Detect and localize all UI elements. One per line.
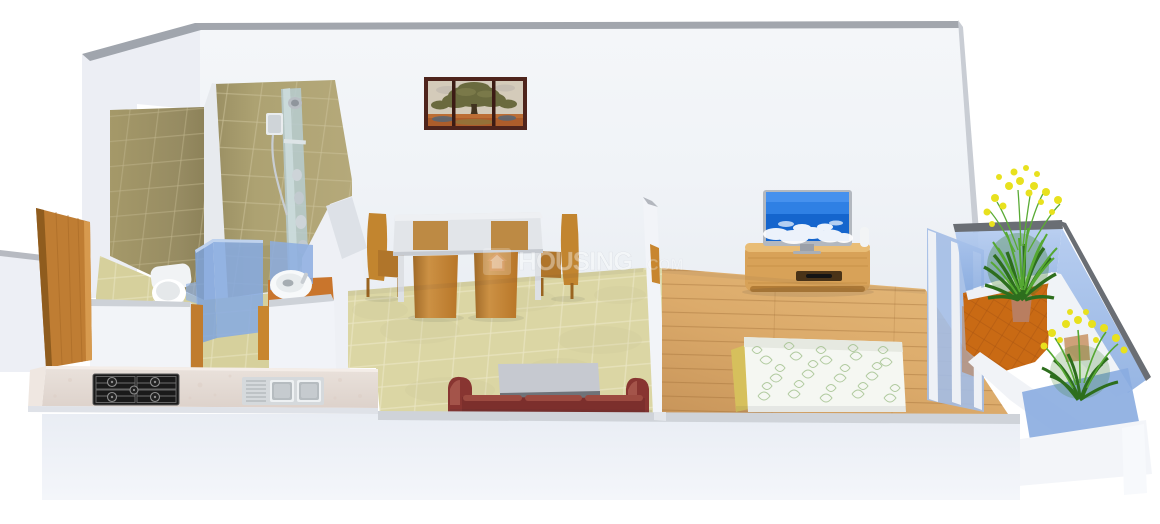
svg-text:.COM: .COM [643,257,683,274]
svg-text:HOUSING: HOUSING [518,246,632,276]
